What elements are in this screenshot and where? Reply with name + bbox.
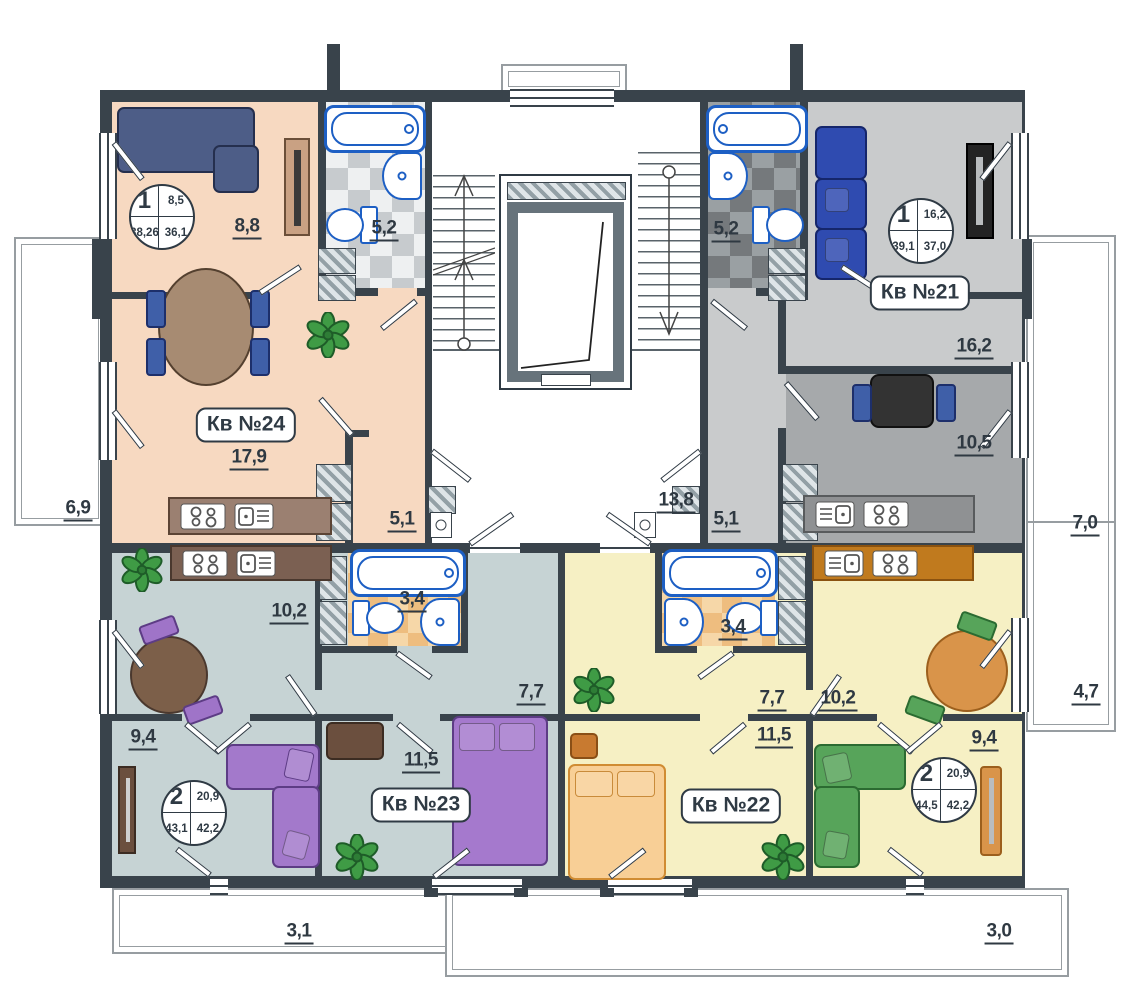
electrical-box-left <box>430 512 452 538</box>
apt23-bath-wall-b2 <box>432 646 461 653</box>
apt21-sofa-1 <box>815 126 867 180</box>
apt23-plant2-icon <box>334 834 380 880</box>
elevator-sill <box>541 374 591 386</box>
apt22-hall-wall-v <box>806 650 813 690</box>
apt21-entry-door <box>660 449 702 483</box>
apt22-kitchen-counter <box>812 545 974 581</box>
apt24-kitchen-counter <box>168 497 332 535</box>
apt24-label: Кв №24 <box>196 408 296 443</box>
apt22-bath-wall-b2 <box>733 646 813 653</box>
chimney-left <box>327 44 340 92</box>
apt23-bedroom-left-area: 9,4 <box>129 728 158 751</box>
apt22-corner-sofa-main <box>814 744 906 790</box>
apt22-plant-icon <box>572 668 616 712</box>
apt22-hall-area: 7,7 <box>758 689 787 712</box>
sill-right <box>1024 239 1032 319</box>
apt24-chair-3 <box>250 290 270 328</box>
apt22-bedroom-divider <box>806 721 813 876</box>
sill-b4 <box>684 888 698 897</box>
apt22-plant2-icon <box>760 834 806 880</box>
apt21-tv <box>966 143 994 239</box>
corridor-entry-apt22 <box>600 543 650 553</box>
balcony-door-bottom-left <box>210 877 228 895</box>
window-bottom-1 <box>432 877 522 895</box>
balcony-door-bottom-right <box>906 877 924 895</box>
elevator-hatch-strip <box>507 182 626 200</box>
apt22-bath-area: 3,4 <box>719 618 748 641</box>
apt24-hall-area: 5,1 <box>388 510 417 533</box>
apt22-kitchen-area: 10,2 <box>819 689 858 712</box>
apt23-hall-area: 7,7 <box>517 683 546 706</box>
sink-icon <box>815 501 855 528</box>
chimney-right <box>790 44 803 92</box>
apt24-dining-table <box>158 268 254 386</box>
sill-b3 <box>600 888 614 897</box>
stove-icon <box>872 550 918 577</box>
vent-apt23-2 <box>319 601 347 645</box>
apt21-hall-area: 5,1 <box>712 510 741 533</box>
apt24-kitchen-area: 17,9 <box>230 448 269 471</box>
window-right-2 <box>1011 362 1029 458</box>
corridor-area: 13,8 <box>657 491 696 514</box>
apt-divider-bottom <box>558 553 565 876</box>
apt22-bathtub <box>662 549 778 597</box>
apt23-entry-door <box>468 512 514 547</box>
apt24-living-area: 8,8 <box>233 217 262 240</box>
apt22-bath-wall-b1 <box>655 646 697 653</box>
sink-icon <box>824 550 864 577</box>
apt24-bath-area: 5,2 <box>370 219 399 242</box>
apt24-chair-2 <box>146 338 166 376</box>
apt23-bath-area: 3,4 <box>398 590 427 613</box>
apt21-living-area: 16,2 <box>955 337 994 360</box>
apt22-bedroom-left-area: 11,5 <box>755 726 793 749</box>
sill-b2 <box>514 888 528 897</box>
apt24-corner-sofa-chaise <box>213 145 259 193</box>
apt21-bath-area: 5,2 <box>712 220 741 243</box>
apt21-kitchen-table <box>870 374 934 428</box>
balcony-bottom-left-area: 3,1 <box>285 922 314 945</box>
apt23-tv-left <box>118 766 136 854</box>
apt22-label: Кв №22 <box>681 789 781 824</box>
apt21-kitchen-counter <box>803 495 975 533</box>
apt21-label: Кв №21 <box>870 276 970 311</box>
sink-icon <box>234 503 274 530</box>
apt21-hall-wall-v1 <box>778 296 786 374</box>
apt24-bath-wall-h2 <box>417 288 425 296</box>
apt23-bath-wall-b1 <box>315 646 397 653</box>
apt21-stamp: 1 16,2 39,1 37,0 <box>888 198 954 264</box>
entrance-opening <box>510 89 614 107</box>
apt23-kitchen-area: 10,2 <box>270 602 309 625</box>
apt24-tv <box>284 138 310 236</box>
apt21-toilet-bowl <box>766 208 804 242</box>
apt24-stamp: 1 8,5 38,26 36,1 <box>129 184 195 250</box>
vent-apt22-2 <box>778 601 806 645</box>
apt24-chair-1 <box>146 290 166 328</box>
apt21-kitchen-area: 10,5 <box>955 434 994 457</box>
apt22-bedroom-wall-h1 <box>565 714 700 721</box>
sink-icon <box>236 550 276 577</box>
vent-apt21-bath-2 <box>768 275 806 301</box>
apt22-bedroom-right-area: 9,4 <box>970 729 999 752</box>
balcony-left-area: 6,9 <box>64 499 93 522</box>
sill-b1 <box>424 888 438 897</box>
balcony-right-upper-area: 7,0 <box>1071 514 1100 537</box>
apt21-chair-left <box>852 384 872 422</box>
sill-left <box>92 239 100 319</box>
apt22-bedroom-wall-h3 <box>943 714 1022 721</box>
stove-icon <box>182 550 228 577</box>
apt21-sofa-2 <box>815 178 867 230</box>
apt22-bed <box>568 764 666 880</box>
apt22-stamp: 2 20,9 44,5 42,2 <box>911 757 977 823</box>
vent-apt24-bath-1 <box>318 248 356 274</box>
apt23-hall-wall-v <box>315 650 322 690</box>
balcony-right <box>1026 235 1116 732</box>
apt23-bedroom-right-area: 11,5 <box>402 751 440 774</box>
balcony-bottom-right <box>445 888 1069 977</box>
apt22-tv <box>980 766 1002 856</box>
apt24-plant-icon <box>305 312 351 358</box>
apt21-sofa-3 <box>815 228 867 280</box>
apt22-bath-wall-l <box>655 553 662 653</box>
apt23-tv-top <box>326 722 384 760</box>
corridor-entry-apt23 <box>470 543 520 553</box>
vent-apt22-1 <box>778 556 806 600</box>
apt22-nightstand <box>570 733 598 759</box>
apt23-stamp: 2 20,9 43,1 42,2 <box>161 780 227 846</box>
apt24-bathtub <box>324 105 426 153</box>
apt21-kitchen-wall-h <box>786 366 1022 374</box>
stair-arrow-up <box>433 168 495 354</box>
apt22-toilet-tank <box>760 600 778 636</box>
apt21-sink <box>708 152 748 200</box>
apt24-entry-door <box>430 449 472 483</box>
apt23-bedroom-wall-h2 <box>250 714 393 721</box>
elevator-door-line <box>507 202 624 382</box>
apt23-kitchen-counter <box>170 545 332 581</box>
window-right-1 <box>1011 133 1029 239</box>
stove-icon <box>863 501 909 528</box>
balcony-bottom-right-area: 3,0 <box>985 922 1014 945</box>
apt24-chair-4 <box>250 338 270 376</box>
floor-plan: 8,8 5,2 17,9 5,1 5,2 16,2 10,5 13,8 5,1 … <box>0 0 1124 1000</box>
outer-wall-bottom <box>100 876 1025 888</box>
window-right-3 <box>1011 618 1029 712</box>
vent-apt21-bath-1 <box>768 248 806 274</box>
apt24-toilet-bowl <box>326 208 364 242</box>
stove-icon <box>180 503 226 530</box>
vent-corridor-1 <box>428 486 456 514</box>
apt23-bedroom-wall-h1 <box>112 714 182 721</box>
apt21-bathtub <box>706 105 808 153</box>
stair-arrow-down <box>638 162 700 342</box>
vent-apt24-bath-2 <box>318 275 356 301</box>
apt24-sink <box>382 152 422 200</box>
corridor-wall-right <box>700 102 708 553</box>
apt23-plant-icon <box>120 548 164 592</box>
apt22-sink <box>664 598 704 646</box>
balcony-right-lower-area: 4,7 <box>1072 683 1101 706</box>
apt21-chair-right <box>936 384 956 422</box>
apt22-corner-sofa-chaise <box>814 786 860 868</box>
apt23-corner-sofa-chaise <box>272 786 320 868</box>
apt23-label: Кв №23 <box>371 788 471 823</box>
